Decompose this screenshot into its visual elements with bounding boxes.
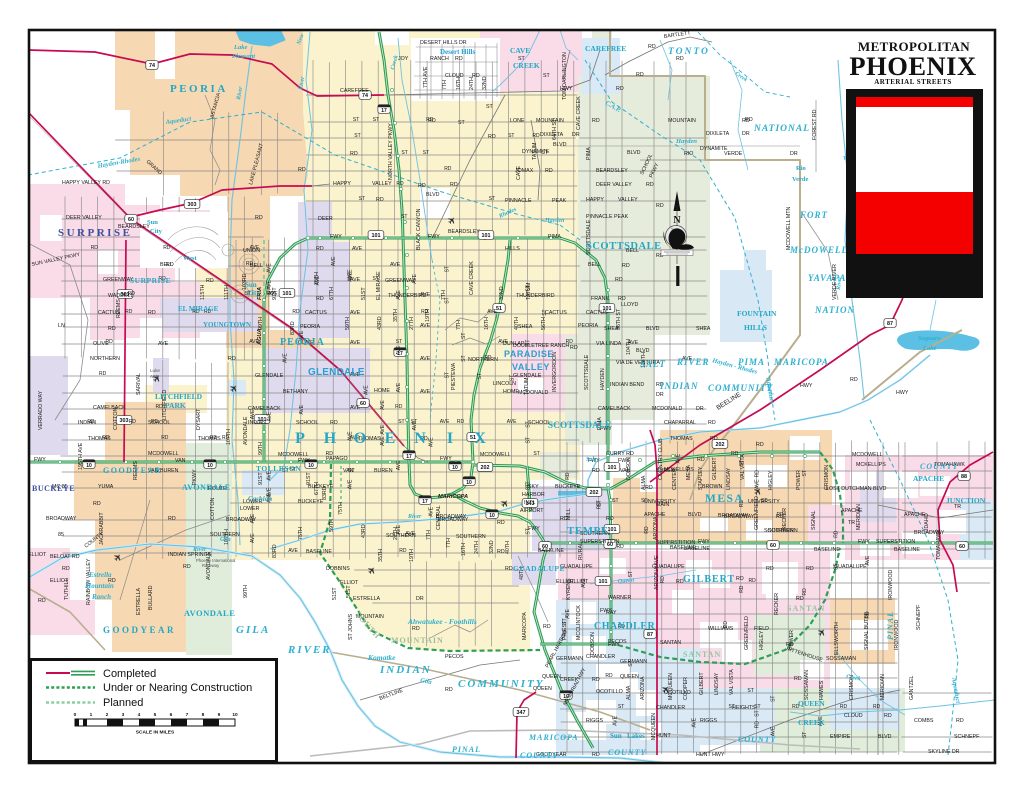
svg-text:43RD: 43RD bbox=[361, 524, 367, 538]
svg-text:RD: RD bbox=[255, 215, 263, 221]
svg-text:AVE: AVE bbox=[420, 292, 431, 298]
svg-text:ST: ST bbox=[526, 285, 532, 291]
svg-text:RD: RD bbox=[865, 611, 871, 619]
svg-text:303: 303 bbox=[120, 418, 129, 424]
svg-text:RD: RD bbox=[497, 520, 505, 526]
svg-text:SCOTTSDALE: SCOTTSDALE bbox=[584, 354, 590, 390]
svg-text:BLVD: BLVD bbox=[646, 326, 660, 332]
svg-text:RD: RD bbox=[228, 356, 236, 362]
svg-text:SUPERSTITION: SUPERSTITION bbox=[876, 539, 915, 545]
svg-text:91ST: 91ST bbox=[306, 472, 312, 485]
svg-text:ST: ST bbox=[542, 150, 548, 156]
svg-text:RD: RD bbox=[850, 377, 858, 383]
svg-text:ARTERIAL STREETS: ARTERIAL STREETS bbox=[874, 78, 952, 86]
svg-text:MARICOPA: MARICOPA bbox=[438, 494, 468, 500]
svg-text:RD: RD bbox=[298, 167, 306, 173]
svg-text:ESTRELLA: ESTRELLA bbox=[136, 587, 142, 615]
svg-text:IDAHO: IDAHO bbox=[924, 513, 930, 530]
svg-text:FWY: FWY bbox=[858, 539, 870, 545]
svg-text:ST: ST bbox=[755, 710, 761, 716]
svg-text:BASELINE: BASELINE bbox=[538, 548, 564, 554]
svg-text:RD: RD bbox=[292, 309, 300, 315]
svg-text:7TH AVE: 7TH AVE bbox=[423, 66, 429, 88]
svg-text:ST: ST bbox=[423, 150, 429, 156]
svg-text:202: 202 bbox=[716, 442, 725, 448]
svg-text:SARIVAL: SARIVAL bbox=[136, 373, 142, 395]
svg-text:CURRY RD: CURRY RD bbox=[606, 451, 634, 457]
svg-text:RD: RD bbox=[350, 151, 358, 157]
svg-text:PEORIA: PEORIA bbox=[280, 337, 325, 348]
svg-text:AVE: AVE bbox=[250, 513, 256, 523]
svg-text:ST: ST bbox=[802, 732, 808, 738]
svg-text:BETHANY: BETHANY bbox=[283, 389, 308, 395]
svg-text:RD: RD bbox=[62, 566, 70, 572]
svg-text:74: 74 bbox=[149, 63, 155, 69]
svg-text:TUTHILL: TUTHILL bbox=[64, 578, 70, 600]
svg-text:HWY: HWY bbox=[896, 390, 909, 396]
svg-text:GLENDALE: GLENDALE bbox=[255, 373, 284, 379]
svg-text:88: 88 bbox=[961, 474, 967, 480]
svg-text:APACHE: APACHE bbox=[904, 512, 926, 518]
svg-text:PINNACLE PEAK: PINNACLE PEAK bbox=[586, 214, 629, 220]
svg-text:RD: RD bbox=[723, 621, 729, 629]
svg-text:VIA LINDA: VIA LINDA bbox=[596, 341, 622, 347]
svg-text:35TH: 35TH bbox=[393, 309, 399, 322]
svg-text:AVE: AVE bbox=[350, 310, 361, 316]
svg-text:DR: DR bbox=[416, 596, 424, 602]
svg-text:City: City bbox=[247, 289, 260, 297]
svg-text:SKYLINE DR: SKYLINE DR bbox=[928, 749, 960, 755]
svg-text:RD: RD bbox=[592, 118, 600, 124]
svg-text:RD: RD bbox=[326, 451, 334, 457]
svg-text:ST: ST bbox=[618, 704, 624, 710]
svg-text:CAVE: CAVE bbox=[516, 166, 522, 180]
svg-text:QUEEN: QUEEN bbox=[542, 674, 561, 680]
svg-text:CAVE CREEK: CAVE CREEK bbox=[469, 261, 475, 295]
svg-text:DR: DR bbox=[696, 406, 704, 412]
svg-text:RD: RD bbox=[376, 197, 384, 203]
svg-text:SOUTHERN: SOUTHERN bbox=[764, 528, 794, 534]
svg-text:RD: RD bbox=[505, 566, 513, 572]
svg-text:N: N bbox=[414, 430, 426, 447]
svg-text:RD: RD bbox=[330, 420, 338, 426]
svg-text:PECOS: PECOS bbox=[445, 654, 464, 660]
svg-text:ST: ST bbox=[401, 150, 407, 156]
svg-text:RD: RD bbox=[708, 420, 716, 426]
svg-text:RD: RD bbox=[316, 246, 324, 252]
svg-text:OCOTILLO: OCOTILLO bbox=[596, 689, 623, 695]
svg-text:115TH: 115TH bbox=[200, 284, 206, 300]
svg-text:AVE: AVE bbox=[412, 273, 418, 283]
svg-text:P: P bbox=[295, 430, 305, 447]
svg-text:LOWER: LOWER bbox=[240, 506, 260, 512]
svg-text:BUCKEYE: BUCKEYE bbox=[32, 484, 75, 493]
svg-text:RD: RD bbox=[644, 526, 650, 534]
svg-text:RURAL: RURAL bbox=[578, 542, 584, 560]
svg-text:MARICOPA: MARICOPA bbox=[773, 357, 829, 367]
svg-text:AVE: AVE bbox=[420, 389, 431, 395]
svg-text:AVE: AVE bbox=[755, 479, 761, 489]
svg-text:COUNTRY CLUB: COUNTRY CLUB bbox=[658, 438, 664, 480]
svg-text:RD: RD bbox=[597, 502, 603, 510]
svg-text:104TH: 104TH bbox=[626, 339, 632, 355]
svg-text:HAPPY VALLEY RD: HAPPY VALLEY RD bbox=[62, 180, 110, 186]
svg-text:GLENDALE: GLENDALE bbox=[308, 367, 365, 378]
svg-text:AVE: AVE bbox=[350, 340, 361, 346]
svg-text:AVE: AVE bbox=[396, 524, 402, 534]
svg-text:ST: ST bbox=[747, 688, 753, 694]
svg-text:Planned: Planned bbox=[103, 697, 143, 709]
svg-text:CAMELBACK: CAMELBACK bbox=[93, 405, 126, 411]
svg-text:MCCLINTOCK: MCCLINTOCK bbox=[576, 605, 582, 640]
svg-text:RD: RD bbox=[444, 166, 452, 172]
svg-text:10: 10 bbox=[489, 513, 495, 519]
svg-text:SANTAN: SANTAN bbox=[683, 650, 721, 659]
svg-text:RD: RD bbox=[622, 263, 630, 269]
svg-text:7: 7 bbox=[186, 712, 189, 718]
svg-text:RIVER: RIVER bbox=[676, 357, 710, 367]
svg-text:RD: RD bbox=[488, 134, 496, 140]
svg-text:Rio: Rio bbox=[796, 165, 806, 172]
svg-text:ST: ST bbox=[486, 104, 494, 110]
svg-text:RD: RD bbox=[697, 457, 705, 463]
svg-text:ALMA: ALMA bbox=[626, 685, 632, 700]
svg-text:AVE: AVE bbox=[347, 269, 353, 279]
svg-text:MESA: MESA bbox=[705, 493, 744, 505]
svg-text:SANTAN: SANTAN bbox=[660, 640, 681, 646]
svg-text:17: 17 bbox=[406, 454, 412, 460]
svg-text:67TH: 67TH bbox=[314, 482, 320, 495]
svg-text:FWY: FWY bbox=[608, 642, 620, 648]
svg-text:Lakes: Lakes bbox=[627, 732, 645, 740]
svg-text:CHAPARRAL: CHAPARRAL bbox=[664, 420, 696, 426]
svg-text:RD: RD bbox=[457, 419, 465, 425]
svg-text:INTL: INTL bbox=[524, 500, 536, 506]
svg-text:Lake: Lake bbox=[233, 44, 247, 51]
svg-text:SURPRISE: SURPRISE bbox=[58, 227, 132, 239]
svg-text:AVE: AVE bbox=[498, 339, 508, 345]
svg-text:Verde: Verde bbox=[792, 176, 808, 183]
svg-text:ST JOHNS: ST JOHNS bbox=[348, 613, 354, 640]
svg-text:RD: RD bbox=[794, 676, 802, 682]
svg-text:MCDOWELL MTN: MCDOWELL MTN bbox=[786, 206, 792, 250]
svg-text:RD: RD bbox=[412, 626, 420, 632]
svg-text:DR: DR bbox=[572, 132, 580, 138]
svg-text:ELLSWORTH: ELLSWORTH bbox=[834, 622, 840, 655]
svg-text:ST: ST bbox=[834, 564, 840, 570]
svg-text:MCDOWELL: MCDOWELL bbox=[148, 451, 179, 457]
svg-text:PIESTEWA: PIESTEWA bbox=[451, 362, 457, 390]
svg-text:AVONDALE: AVONDALE bbox=[243, 416, 249, 445]
svg-text:FWY: FWY bbox=[600, 608, 612, 614]
svg-text:ST: ST bbox=[398, 419, 404, 425]
svg-text:QUEEN: QUEEN bbox=[798, 699, 825, 708]
svg-text:ST: ST bbox=[533, 451, 539, 457]
svg-text:RD: RD bbox=[884, 713, 892, 719]
svg-text:GILBERT: GILBERT bbox=[683, 574, 735, 585]
svg-text:Desert Hills: Desert Hills bbox=[440, 48, 475, 56]
svg-text:4: 4 bbox=[138, 712, 141, 718]
svg-text:E: E bbox=[385, 430, 396, 447]
svg-text:RD: RD bbox=[956, 718, 964, 724]
svg-text:JACKRABBIT: JACKRABBIT bbox=[99, 512, 105, 545]
svg-text:FWY: FWY bbox=[698, 539, 710, 545]
svg-text:AFB: AFB bbox=[150, 374, 159, 379]
svg-text:QUEEN: QUEEN bbox=[533, 686, 552, 692]
svg-text:51ST: 51ST bbox=[361, 287, 367, 300]
svg-text:RD: RD bbox=[777, 512, 785, 518]
svg-text:87: 87 bbox=[887, 321, 893, 327]
svg-text:32ND: 32ND bbox=[499, 286, 505, 300]
svg-text:RD: RD bbox=[646, 182, 654, 188]
svg-text:BUCKEYE: BUCKEYE bbox=[298, 499, 324, 505]
svg-text:HAWES: HAWES bbox=[819, 680, 825, 700]
svg-text:RD: RD bbox=[426, 117, 434, 123]
svg-text:ST: ST bbox=[770, 696, 776, 702]
svg-text:RANCH: RANCH bbox=[430, 56, 449, 62]
svg-text:I: I bbox=[447, 430, 453, 447]
svg-text:17: 17 bbox=[381, 108, 387, 114]
svg-text:ST: ST bbox=[461, 333, 467, 339]
svg-text:Mountain: Mountain bbox=[84, 582, 114, 590]
svg-text:TATUM: TATUM bbox=[524, 378, 530, 395]
svg-text:ARIZONA: ARIZONA bbox=[653, 516, 659, 540]
svg-text:PEORIA: PEORIA bbox=[300, 324, 320, 330]
svg-text:SUPERSTITION: SUPERSTITION bbox=[656, 540, 695, 546]
svg-text:GERMANN: GERMANN bbox=[556, 656, 583, 662]
svg-text:ST: ST bbox=[802, 470, 808, 476]
svg-text:Salt: Salt bbox=[586, 457, 596, 463]
svg-text:RD: RD bbox=[106, 339, 114, 345]
svg-text:YUMA: YUMA bbox=[98, 484, 114, 490]
svg-text:195TH AVE: 195TH AVE bbox=[78, 442, 84, 470]
svg-text:RD: RD bbox=[455, 56, 463, 62]
svg-text:City: City bbox=[150, 228, 163, 235]
svg-text:LLOYD: LLOYD bbox=[621, 302, 639, 308]
svg-text:CHANDLER: CHANDLER bbox=[594, 621, 656, 632]
svg-text:MARICOPA: MARICOPA bbox=[522, 612, 528, 640]
svg-text:101: 101 bbox=[599, 579, 608, 585]
svg-text:RD: RD bbox=[102, 435, 110, 441]
svg-text:MCKELLIPS: MCKELLIPS bbox=[856, 462, 886, 468]
svg-text:AVE: AVE bbox=[283, 353, 289, 363]
svg-text:CRISMON: CRISMON bbox=[824, 465, 830, 490]
svg-text:FOUNTAIN: FOUNTAIN bbox=[737, 309, 777, 318]
svg-text:ST: ST bbox=[526, 528, 532, 534]
svg-text:RD: RD bbox=[605, 673, 613, 679]
svg-text:RD: RD bbox=[731, 451, 739, 457]
svg-text:ST: ST bbox=[612, 498, 618, 504]
svg-text:RD: RD bbox=[99, 371, 107, 377]
svg-text:ST: ST bbox=[739, 460, 745, 466]
svg-text:75TH: 75TH bbox=[298, 527, 304, 540]
svg-text:AVE: AVE bbox=[428, 506, 434, 516]
svg-text:10: 10 bbox=[86, 463, 92, 469]
svg-text:LINDSAY: LINDSAY bbox=[714, 672, 720, 695]
svg-text:16TH: 16TH bbox=[484, 317, 490, 330]
svg-text:LINCOLN: LINCOLN bbox=[493, 381, 516, 387]
svg-text:MOUNTAIN: MOUNTAIN bbox=[391, 636, 444, 645]
svg-text:ST: ST bbox=[445, 372, 451, 378]
svg-text:MCDONALD: MCDONALD bbox=[518, 390, 548, 396]
svg-text:TOM DARLINGTON: TOM DARLINGTON bbox=[562, 52, 568, 100]
svg-text:RD: RD bbox=[802, 588, 808, 596]
svg-text:LITCHFIELD: LITCHFIELD bbox=[155, 392, 203, 401]
svg-text:CLOUD: CLOUD bbox=[844, 713, 863, 719]
svg-text:8: 8 bbox=[202, 712, 205, 718]
svg-text:BUREN: BUREN bbox=[374, 468, 393, 474]
svg-text:Estrella: Estrella bbox=[88, 571, 112, 579]
svg-text:GILA: GILA bbox=[236, 624, 270, 636]
svg-text:GANTZEL: GANTZEL bbox=[909, 676, 915, 700]
svg-text:COMBS: COMBS bbox=[914, 718, 934, 724]
svg-text:HILLS: HILLS bbox=[744, 323, 767, 332]
svg-text:VERRADO WAY: VERRADO WAY bbox=[38, 390, 44, 430]
svg-text:THOMAS: THOMAS bbox=[670, 436, 693, 442]
svg-text:AVE: AVE bbox=[396, 345, 402, 355]
svg-text:RIO: RIO bbox=[684, 151, 693, 157]
svg-text:GREENFIELD: GREENFIELD bbox=[744, 616, 750, 650]
svg-text:7TH: 7TH bbox=[426, 530, 432, 540]
svg-text:RD: RD bbox=[615, 277, 623, 283]
svg-text:EL MIRAGE: EL MIRAGE bbox=[178, 305, 219, 313]
svg-text:KYRENE: KYRENE bbox=[566, 578, 572, 600]
svg-text:RD: RD bbox=[445, 687, 453, 693]
svg-text:43RD: 43RD bbox=[377, 316, 383, 330]
svg-text:60: 60 bbox=[959, 544, 965, 550]
svg-text:87: 87 bbox=[647, 632, 653, 638]
svg-text:40TH: 40TH bbox=[514, 317, 520, 330]
svg-text:INDIAN: INDIAN bbox=[248, 420, 266, 426]
svg-text:Pleasant: Pleasant bbox=[232, 53, 255, 60]
svg-text:RD: RD bbox=[91, 245, 99, 251]
svg-text:51ST: 51ST bbox=[332, 587, 338, 600]
svg-text:74: 74 bbox=[362, 93, 368, 99]
svg-text:LN: LN bbox=[58, 323, 65, 329]
svg-text:Komatke: Komatke bbox=[367, 653, 396, 662]
svg-text:CENTER: CENTER bbox=[672, 468, 678, 490]
svg-text:Cashion: Cashion bbox=[248, 495, 272, 503]
svg-text:BLACK CANYON: BLACK CANYON bbox=[416, 208, 422, 250]
svg-text:ST: ST bbox=[396, 339, 402, 345]
svg-text:PINAL: PINAL bbox=[452, 745, 481, 754]
svg-text:RD: RD bbox=[749, 578, 757, 584]
svg-text:RD: RD bbox=[543, 624, 551, 630]
svg-text:ST: ST bbox=[353, 117, 359, 123]
svg-text:RD: RD bbox=[660, 576, 666, 584]
svg-text:99TH: 99TH bbox=[258, 317, 264, 330]
svg-text:RD: RD bbox=[210, 435, 218, 441]
svg-text:64TH ST: 64TH ST bbox=[552, 118, 558, 140]
svg-text:DYSART: DYSART bbox=[196, 408, 202, 430]
svg-text:DR: DR bbox=[742, 131, 750, 137]
svg-text:CACTUS: CACTUS bbox=[586, 310, 608, 316]
svg-text:AVE: AVE bbox=[266, 411, 272, 421]
svg-text:CENTRAL: CENTRAL bbox=[436, 505, 442, 530]
svg-text:SCOTTSDALE: SCOTTSDALE bbox=[548, 420, 612, 430]
svg-text:INDIAN: INDIAN bbox=[659, 381, 699, 391]
svg-text:51ST: 51ST bbox=[346, 585, 352, 598]
svg-text:Hayden: Hayden bbox=[544, 218, 565, 224]
svg-text:LOST DUTCHMAN BLVD: LOST DUTCHMAN BLVD bbox=[826, 486, 887, 492]
svg-text:ARIZONA AVE: ARIZONA AVE bbox=[654, 555, 660, 590]
svg-text:RD: RD bbox=[806, 566, 814, 572]
svg-text:RIGGS: RIGGS bbox=[700, 718, 718, 724]
svg-text:MERIDIAN: MERIDIAN bbox=[856, 504, 862, 530]
svg-text:RD: RD bbox=[246, 261, 254, 267]
svg-text:BELL: BELL bbox=[588, 262, 601, 268]
svg-text:ST: ST bbox=[526, 437, 532, 443]
svg-text:RD: RD bbox=[648, 44, 656, 50]
svg-text:91ST: 91ST bbox=[258, 472, 264, 485]
svg-text:202: 202 bbox=[481, 465, 490, 471]
svg-text:32ND: 32ND bbox=[489, 540, 495, 554]
svg-text:RD: RD bbox=[128, 291, 136, 297]
svg-text:CAMELBACK: CAMELBACK bbox=[598, 406, 631, 412]
svg-text:BULLARD: BULLARD bbox=[148, 585, 154, 610]
svg-text:AVE: AVE bbox=[268, 291, 278, 297]
svg-text:RD: RD bbox=[755, 470, 761, 478]
svg-text:CAREFREE: CAREFREE bbox=[585, 44, 626, 53]
svg-text:ST: ST bbox=[543, 73, 551, 79]
svg-text:THUNDERBIRD: THUNDERBIRD bbox=[516, 293, 555, 299]
svg-text:AVE: AVE bbox=[390, 262, 401, 268]
svg-text:RD: RD bbox=[125, 309, 133, 315]
svg-text:X: X bbox=[474, 430, 486, 447]
svg-text:AVE: AVE bbox=[396, 290, 402, 300]
svg-text:16TH: 16TH bbox=[461, 543, 467, 556]
svg-text:ST: ST bbox=[373, 117, 379, 123]
svg-text:RD: RD bbox=[316, 296, 324, 302]
svg-text:VALLEY: VALLEY bbox=[372, 181, 392, 187]
svg-text:303: 303 bbox=[188, 202, 197, 208]
svg-text:AVE: AVE bbox=[565, 608, 571, 618]
svg-text:RD: RD bbox=[616, 86, 624, 92]
svg-text:MOUNTAIN: MOUNTAIN bbox=[536, 118, 564, 124]
svg-text:AVE: AVE bbox=[865, 555, 871, 565]
svg-text:17: 17 bbox=[422, 499, 428, 505]
svg-text:EMPIRE: EMPIRE bbox=[830, 734, 851, 740]
svg-text:AVE: AVE bbox=[352, 246, 363, 252]
svg-text:IRONWOOD: IRONWOOD bbox=[888, 570, 894, 600]
svg-text:9: 9 bbox=[218, 712, 221, 718]
svg-text:0: 0 bbox=[74, 712, 77, 718]
svg-text:AVE: AVE bbox=[396, 460, 402, 470]
svg-text:AVE: AVE bbox=[420, 356, 431, 362]
svg-text:RD: RD bbox=[418, 183, 426, 189]
svg-text:H: H bbox=[324, 430, 337, 447]
svg-text:HAPPY: HAPPY bbox=[586, 197, 604, 203]
svg-text:10: 10 bbox=[466, 480, 472, 486]
svg-text:ST: ST bbox=[641, 498, 647, 504]
svg-text:REEMS: REEMS bbox=[116, 299, 122, 318]
svg-text:CREEK: CREEK bbox=[798, 718, 825, 727]
svg-text:ARIZONA: ARIZONA bbox=[640, 676, 646, 700]
svg-text:ST: ST bbox=[477, 373, 483, 379]
svg-text:SCHOOL: SCHOOL bbox=[296, 420, 318, 426]
svg-text:101: 101 bbox=[283, 291, 292, 297]
svg-text:RD: RD bbox=[156, 404, 164, 410]
svg-text:SCALE IN MILES: SCALE IN MILES bbox=[136, 730, 175, 736]
svg-text:TOMAHAWK: TOMAHAWK bbox=[936, 529, 942, 560]
svg-text:HEIGHTS: HEIGHTS bbox=[732, 705, 756, 711]
svg-text:99TH: 99TH bbox=[258, 442, 264, 455]
svg-text:ST: ST bbox=[411, 419, 417, 425]
svg-text:ST: ST bbox=[526, 484, 532, 490]
svg-text:ST: ST bbox=[628, 571, 634, 577]
svg-text:ALMA: ALMA bbox=[641, 475, 647, 490]
svg-text:DEER VALLEY: DEER VALLEY bbox=[66, 215, 102, 221]
